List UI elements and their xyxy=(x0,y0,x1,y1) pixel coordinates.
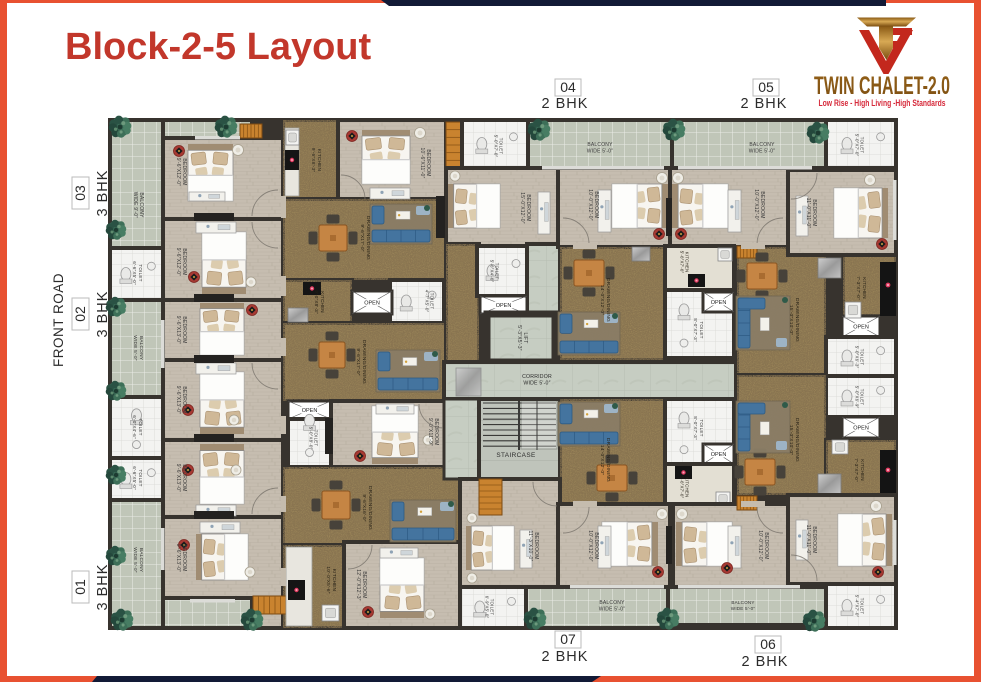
svg-text:OPEN: OPEN xyxy=(496,303,512,309)
svg-text:2 BHK: 2 BHK xyxy=(542,649,589,665)
svg-text:OPEN: OPEN xyxy=(302,408,318,414)
svg-text:3 BHK: 3 BHK xyxy=(95,564,111,611)
svg-text:BALCONYWIDE 5'-0″: BALCONYWIDE 5'-0″ xyxy=(599,600,625,612)
svg-text:TOILET5'-4″X7'-0″: TOILET5'-4″X7'-0″ xyxy=(854,595,864,618)
svg-text:03: 03 xyxy=(72,185,88,201)
svg-text:TOILET5'-0″X8'-0″: TOILET5'-0″X8'-0″ xyxy=(308,427,318,450)
svg-text:02: 02 xyxy=(72,306,88,322)
svg-text:TOILET6'-6″X5'-0″: TOILET6'-6″X5'-0″ xyxy=(132,261,143,285)
svg-text:OPEN: OPEN xyxy=(364,301,380,307)
svg-text:BEDROOM9'-6″X13'-0″: BEDROOM9'-6″X13'-0″ xyxy=(175,386,187,414)
svg-text:OPEN: OPEN xyxy=(711,452,727,458)
svg-text:BEDROOM9'-0″X11'-9″: BEDROOM9'-0″X11'-9″ xyxy=(427,418,439,446)
svg-text:FRONT ROAD: FRONT ROAD xyxy=(51,273,66,367)
svg-text:TOILET5'-0″X6'-3″: TOILET5'-0″X6'-3″ xyxy=(854,346,864,369)
svg-text:BEDROOM10'-6″X11'-0″: BEDROOM10'-6″X11'-0″ xyxy=(419,147,431,178)
svg-text:KITCHEN7'-3″X7'-0″: KITCHEN7'-3″X7'-0″ xyxy=(854,458,865,482)
svg-text:KITCHEN9'-6″X8'-3″: KITCHEN9'-6″X8'-3″ xyxy=(310,148,322,173)
svg-text:BEDROOM15'-0″X12'-0″: BEDROOM15'-0″X12'-0″ xyxy=(519,192,531,223)
svg-text:TOILET8'-0″X7'-3″: TOILET8'-0″X7'-3″ xyxy=(693,318,704,342)
svg-text:BEDROOM11'-0″X11'-0″: BEDROOM11'-0″X11'-0″ xyxy=(805,198,817,229)
svg-text:BEDROOM10'-0″X12'-0″: BEDROOM10'-0″X12'-0″ xyxy=(587,189,599,220)
svg-text:BEDROOM10'-0″X12'-0″: BEDROOM10'-0″X12'-0″ xyxy=(753,189,765,220)
svg-text:BEDROOM9'-6″X12'-0″: BEDROOM9'-6″X12'-0″ xyxy=(175,248,187,276)
svg-text:BEDROOM9'-6″X13'-0″: BEDROOM9'-6″X13'-0″ xyxy=(175,316,187,344)
svg-text:BEDROOM11'-3″X10'-0″: BEDROOM11'-3″X10'-0″ xyxy=(527,530,539,561)
svg-text:BALCONYWIDE 5'-0″: BALCONYWIDE 5'-0″ xyxy=(132,335,144,361)
svg-text:OPEN: OPEN xyxy=(853,325,869,331)
svg-text:TOILET5'-0″X6'-9″: TOILET5'-0″X6'-9″ xyxy=(854,386,864,409)
svg-text:BEDROOM11'-0″X11'-0″: BEDROOM11'-0″X11'-0″ xyxy=(805,525,817,556)
svg-text:TOILET4'-7″X5'-0″: TOILET4'-7″X5'-0″ xyxy=(424,290,434,313)
svg-text:BALCONYWIDE 5'-0″: BALCONYWIDE 5'-0″ xyxy=(587,142,613,154)
svg-text:TOILET6'-0″X4'-6″: TOILET6'-0″X4'-6″ xyxy=(132,415,143,439)
svg-text:OPEN: OPEN xyxy=(853,426,869,432)
svg-text:07: 07 xyxy=(560,631,576,647)
svg-text:06: 06 xyxy=(760,636,776,652)
svg-text:TOILET6'-6″X5'-0″: TOILET6'-6″X5'-0″ xyxy=(132,466,143,490)
svg-text:BEDROOM9'-6″X13'-0″: BEDROOM9'-6″X13'-0″ xyxy=(175,464,187,492)
svg-text:BALCONYWIDE 5'-0″: BALCONYWIDE 5'-0″ xyxy=(749,142,775,154)
svg-text:TOILET6'-9″X5'-0″: TOILET6'-9″X5'-0″ xyxy=(484,596,494,619)
svg-text:BEDROOM10'-0″X12'-0″: BEDROOM10'-0″X12'-0″ xyxy=(587,530,599,561)
svg-text:TOILET5'-0″X7'-0″: TOILET5'-0″X7'-0″ xyxy=(493,135,503,158)
svg-text:3 BHK: 3 BHK xyxy=(95,291,111,338)
svg-text:3 BHK: 3 BHK xyxy=(95,170,111,217)
svg-text:KITCHEN7'-3″X7'-0″: KITCHEN7'-3″X7'-0″ xyxy=(856,276,867,300)
svg-text:BALCONYWIDE 9'-0″: BALCONYWIDE 9'-0″ xyxy=(132,192,144,218)
svg-text:BEDROOM12'-0″X12'-3″: BEDROOM12'-0″X12'-3″ xyxy=(355,569,367,600)
svg-text:Low Rise - High Living -High S: Low Rise - High Living -High Standards xyxy=(819,98,946,109)
svg-text:KITCHEN5'-6″X7'-6″: KITCHEN5'-6″X7'-6″ xyxy=(679,476,689,499)
svg-text:TOILET5'-0″X7'-0″: TOILET5'-0″X7'-0″ xyxy=(854,134,864,157)
svg-text:TWIN CHALET-2.0: TWIN CHALET-2.0 xyxy=(814,72,950,100)
svg-text:04: 04 xyxy=(560,79,576,95)
svg-text:01: 01 xyxy=(72,579,88,595)
svg-text:05: 05 xyxy=(758,79,774,95)
svg-text:OPEN: OPEN xyxy=(711,300,727,306)
svg-text:CORRIDORWIDE 5'-0″: CORRIDORWIDE 5'-0″ xyxy=(522,374,552,387)
svg-text:BEDROOM9'-6″X13'-0″: BEDROOM9'-6″X13'-0″ xyxy=(175,544,187,572)
svg-text:2 BHK: 2 BHK xyxy=(542,96,589,112)
svg-text:TOILET5'-6″X4'-6″: TOILET5'-6″X4'-6″ xyxy=(489,260,499,283)
svg-text:BALCONYWIDE 5'-0″: BALCONYWIDE 5'-0″ xyxy=(731,600,756,611)
svg-text:BALCONYWIDE 5'-0″: BALCONYWIDE 5'-0″ xyxy=(132,547,144,573)
svg-text:STAIRCASE: STAIRCASE xyxy=(496,452,535,459)
svg-text:2 BHK: 2 BHK xyxy=(741,96,788,112)
svg-text:Block-2-5 Layout: Block-2-5 Layout xyxy=(65,26,372,68)
svg-text:2 BHK: 2 BHK xyxy=(742,654,789,670)
svg-text:KITCHEN5'-6″X7'-6″: KITCHEN5'-6″X7'-6″ xyxy=(679,251,689,274)
svg-text:BEDROOM10'-0″X12'-0″: BEDROOM10'-0″X12'-0″ xyxy=(757,530,769,561)
svg-text:TOILET8'-0″X7'-3″: TOILET8'-0″X7'-3″ xyxy=(693,416,704,440)
svg-text:KITCHEN10'-0″X5'-6″: KITCHEN10'-0″X5'-6″ xyxy=(325,566,337,593)
svg-text:KITCHEN9'-0″X8'-3″: KITCHEN9'-0″X8'-3″ xyxy=(314,290,325,314)
svg-text:BEDROOM9'-6″X12'-0″: BEDROOM9'-6″X12'-0″ xyxy=(175,158,187,186)
